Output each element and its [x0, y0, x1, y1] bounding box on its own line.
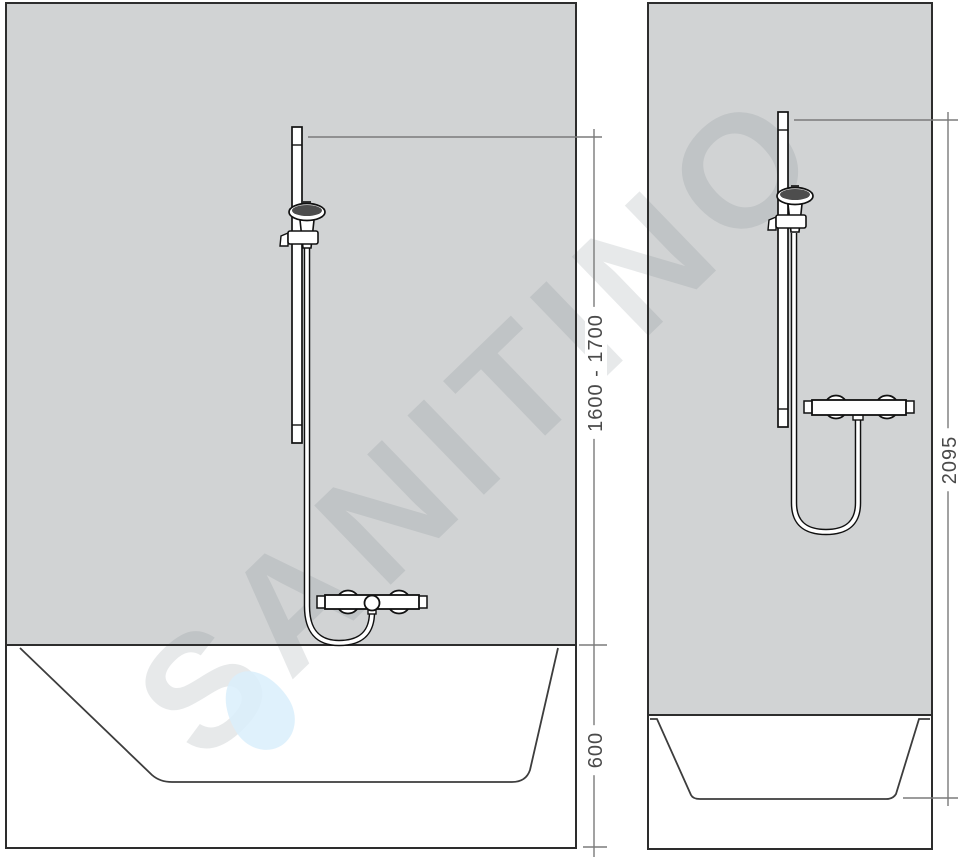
thermostat-mixer: [804, 396, 914, 421]
shower-hose: [307, 248, 372, 643]
diagram-linework: [0, 0, 960, 859]
wall-outline: [648, 3, 932, 715]
dimension-lines-left: [308, 129, 607, 857]
dimension-label-tub-height: 600: [585, 725, 607, 775]
shower-holder: [768, 215, 806, 230]
shower-tray-view: [648, 3, 958, 849]
thermostat-mixer: [317, 591, 427, 615]
wall-outline: [6, 3, 576, 645]
shower-holder: [280, 231, 318, 246]
shower-slide-bar: [778, 112, 788, 427]
installation-diagram: SANITINO: [0, 0, 960, 859]
bathtub-view: [6, 3, 607, 857]
shower-tray: [648, 715, 932, 849]
bathtub: [6, 645, 576, 848]
dimension-label-total-height: 2095: [939, 429, 960, 492]
shower-hose: [794, 233, 858, 532]
dimension-lines-right: [794, 112, 958, 806]
dimension-label-rail-height-range: 1600 - 1700: [585, 307, 607, 439]
shower-slide-bar: [292, 127, 302, 443]
